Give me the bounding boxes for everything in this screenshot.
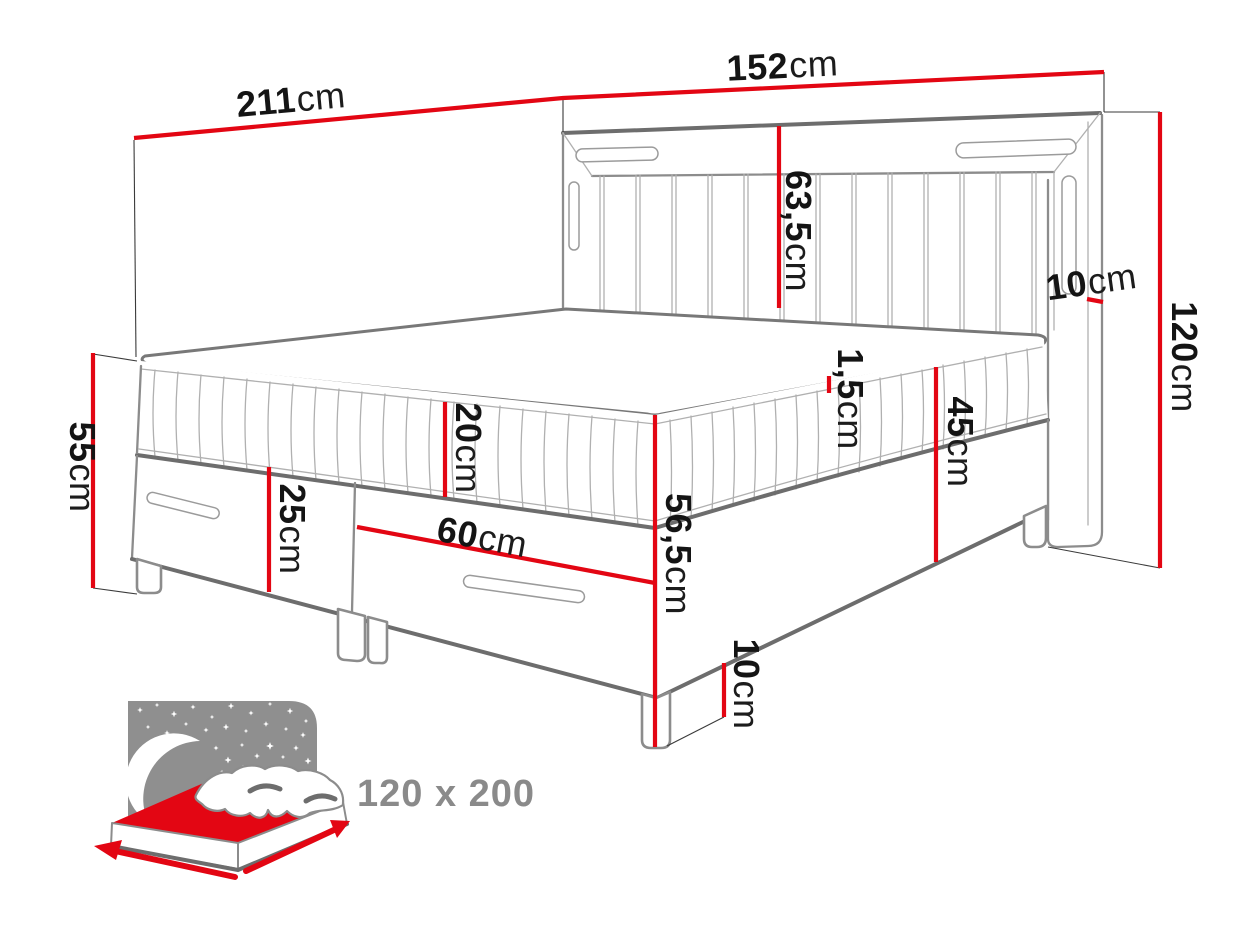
ext-55-top — [93, 354, 137, 361]
label-leg-height: 10cm — [726, 638, 767, 729]
bed-diagram: 211cm 152cm 63,5cm 10cm 120cm 55cm 20cm … — [0, 0, 1257, 943]
label-base-left-height: 55cm — [62, 421, 103, 512]
label-corner-height: 56,5cm — [658, 493, 699, 615]
ext-left-vertical — [134, 140, 136, 357]
label-headboard-width: 152cm — [726, 42, 839, 88]
ext-55-bottom — [93, 588, 137, 594]
ext-120-bottom — [1048, 547, 1160, 568]
badge-size-label: 120 x 200 — [357, 773, 535, 815]
headboard-led-slot-left-vertical — [569, 182, 579, 250]
headboard-top-rail-inner-edge — [592, 172, 1054, 176]
size-badge: 120 x 200 — [94, 701, 535, 877]
ext-leg-10 — [667, 717, 724, 746]
leg-middle-a — [338, 609, 365, 661]
headboard-led-slot-top-left — [576, 147, 658, 162]
headboard-top-edge — [563, 113, 1100, 133]
icon-blanket — [195, 765, 343, 817]
bed-technical-drawing-page: 211cm 152cm 63,5cm 10cm 120cm 55cm 20cm … — [0, 0, 1257, 943]
label-topper-edge-height: 1,5cm — [830, 348, 871, 450]
label-headboard-panel-height: 63,5cm — [778, 170, 819, 292]
label-headboard-height: 120cm — [1164, 301, 1205, 413]
bed-size-icon — [94, 701, 350, 877]
label-total-width: 211cm — [234, 74, 347, 125]
label-side-rail-height: 45cm — [940, 396, 981, 487]
headboard-led-slot-top-right — [956, 139, 1076, 158]
leg-front-left — [137, 559, 161, 593]
label-drawer-front-height: 25cm — [272, 483, 313, 574]
leg-middle-b — [368, 617, 387, 663]
label-mattress-height: 20cm — [448, 402, 489, 493]
icon-length-arrowhead — [94, 840, 122, 860]
